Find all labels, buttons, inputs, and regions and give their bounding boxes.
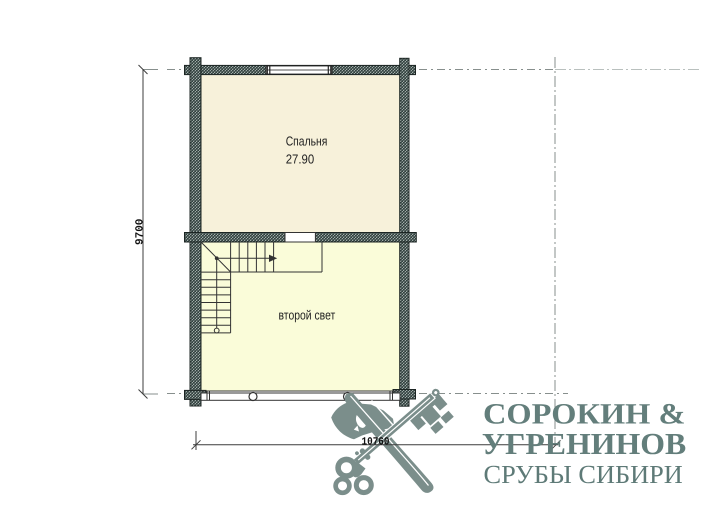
svg-text:второй свет: второй свет [279, 308, 336, 323]
svg-text:СРУБЫ СИБИРИ: СРУБЫ СИБИРИ [484, 460, 684, 489]
svg-text:9700: 9700 [135, 219, 147, 245]
svg-text:УГРЕНИНОВ: УГРЕНИНОВ [482, 427, 686, 461]
svg-text:СОРОКИН &: СОРОКИН & [483, 399, 686, 431]
svg-text:Спальня: Спальня [286, 133, 328, 148]
svg-text:27.90: 27.90 [286, 152, 315, 167]
svg-text:10760: 10760 [362, 437, 390, 449]
